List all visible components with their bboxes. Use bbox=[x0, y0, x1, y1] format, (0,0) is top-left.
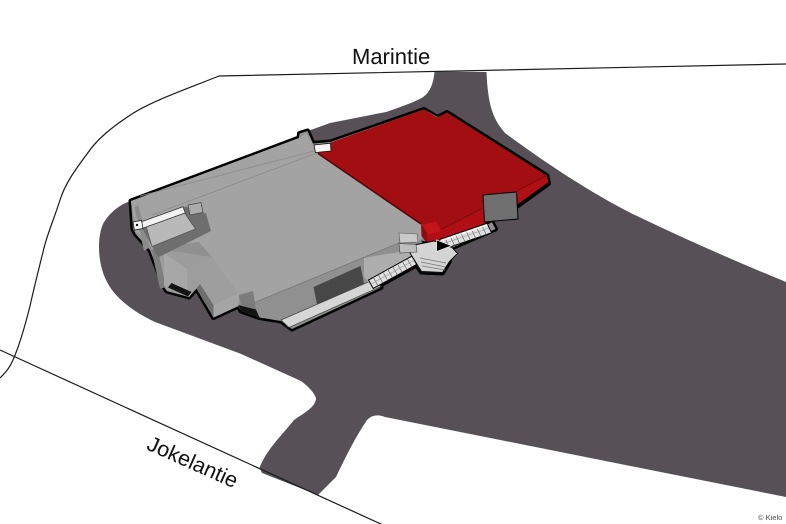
svg-text:© Kielo: © Kielo bbox=[758, 513, 782, 522]
svg-text:Marintie: Marintie bbox=[352, 44, 430, 69]
